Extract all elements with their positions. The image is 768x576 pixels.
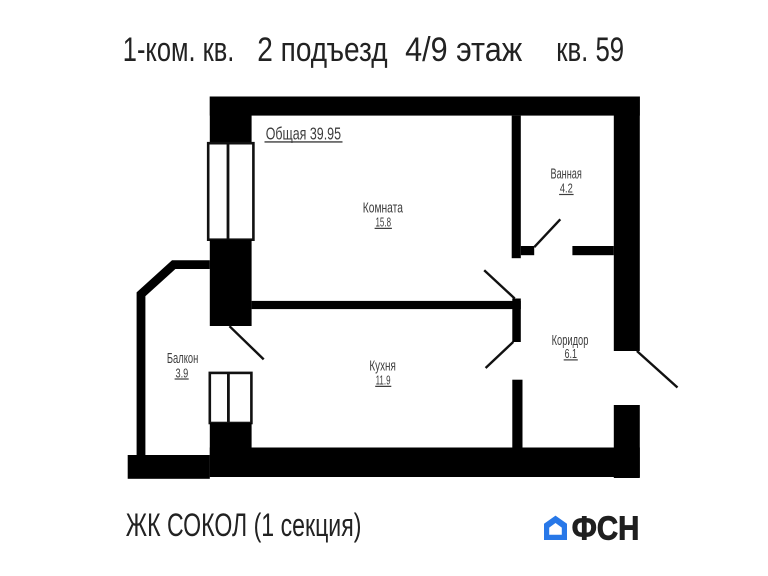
svg-text:кв. 59: кв. 59 <box>556 31 624 69</box>
svg-text:2 подъезд: 2 подъезд <box>257 31 387 69</box>
svg-text:4.2: 4.2 <box>560 181 573 196</box>
svg-text:4/9 этаж: 4/9 этаж <box>405 31 522 69</box>
svg-text:ЖК СОКОЛ (1 секция): ЖК СОКОЛ (1 секция) <box>126 507 362 543</box>
svg-text:Общая 39.95: Общая 39.95 <box>266 124 341 144</box>
svg-text:15.8: 15.8 <box>376 215 392 230</box>
svg-text:1-ком. кв.: 1-ком. кв. <box>123 31 235 69</box>
svg-text:11.9: 11.9 <box>376 372 391 387</box>
svg-text:ФСН: ФСН <box>572 510 640 547</box>
svg-text:6.1: 6.1 <box>565 346 578 361</box>
svg-text:3.9: 3.9 <box>176 365 189 380</box>
